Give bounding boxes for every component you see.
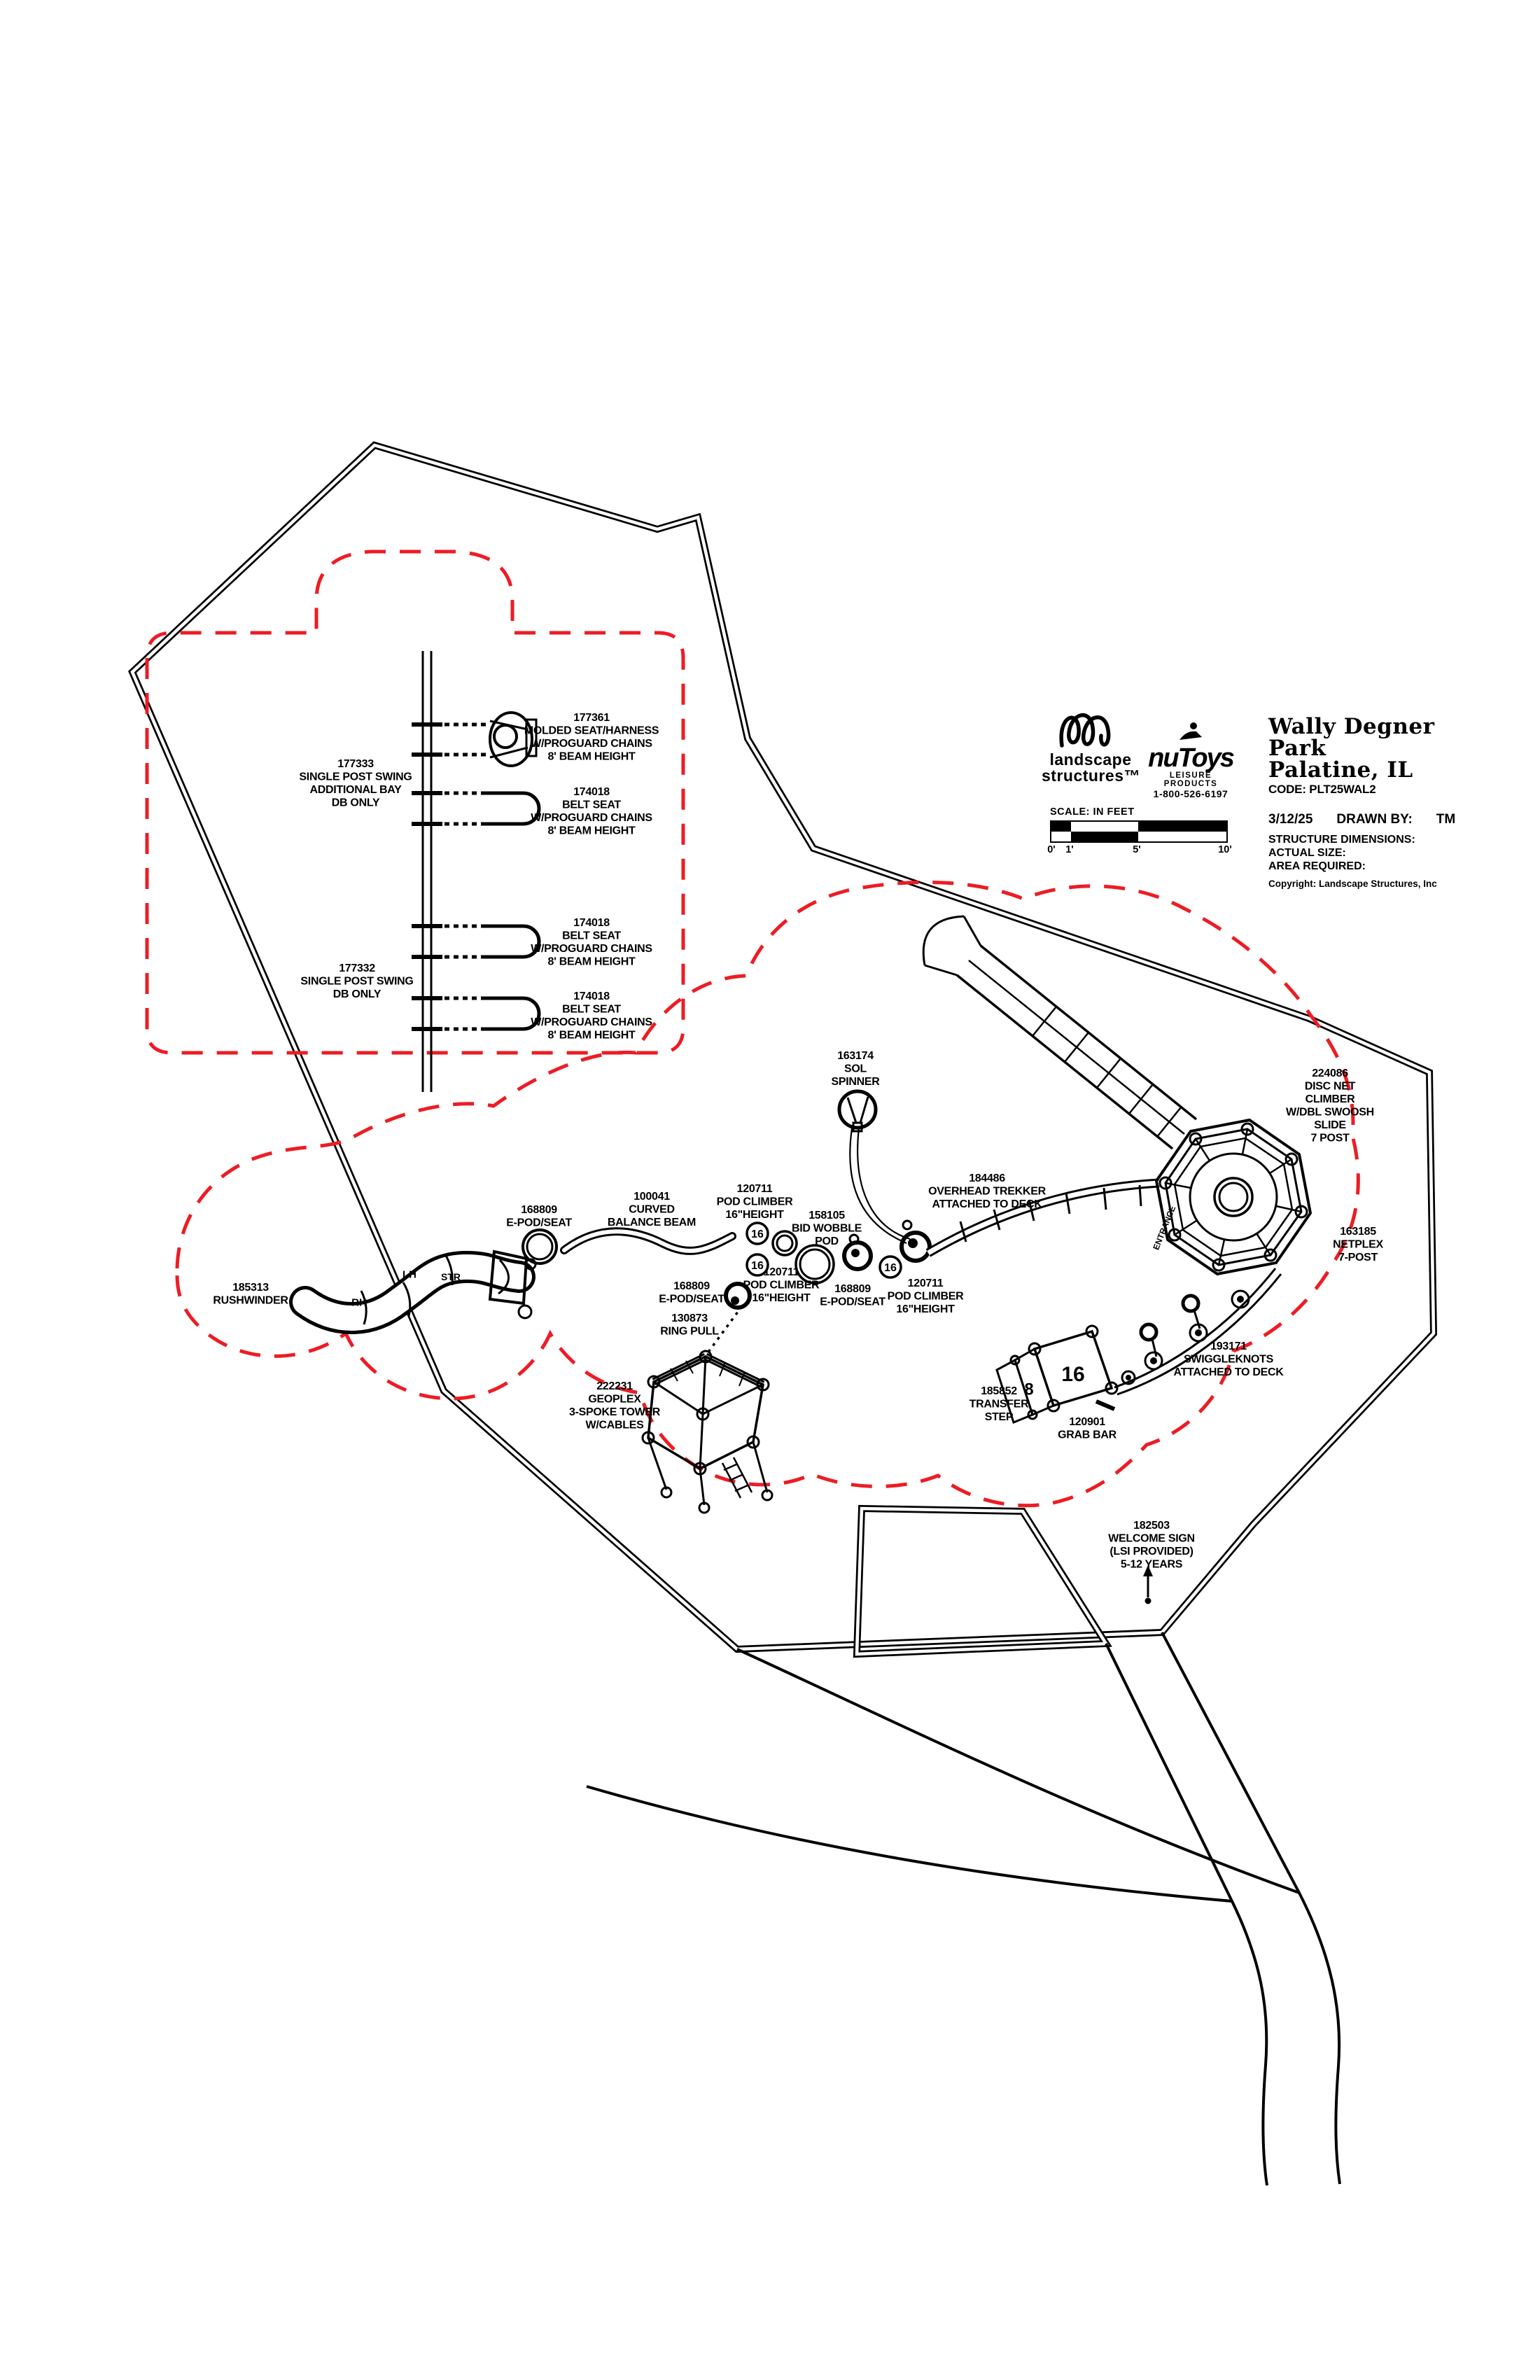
scale-bar: SCALE: IN FEET 0' 1' 5' 10' [1050,806,1239,855]
curved-balance-beam [564,1231,732,1251]
nutoys-logo: nuToys LEISURE PRODUCTS 1-800-526-6197 [1145,722,1236,799]
plan-mark-text: 8 [1024,1380,1033,1399]
geoplex-tower [643,1351,772,1513]
e-pod-seat-2 [844,1235,871,1269]
plan-mark-text: LH [402,1268,416,1280]
belt-seats [484,793,539,1029]
field-area-required: AREA REQUIRED: [1268,860,1492,873]
scale-bar-graphic [1050,820,1228,843]
grab-bar [1096,1401,1114,1409]
site-boundary [132,445,1434,1654]
title-block-text: Wally Degner Park Palatine, IL CODE: PLT… [1268,716,1492,889]
equipment-label: 100041CURVEDBALANCE BEAM [608,1191,696,1228]
field-structure-dimensions: STRUCTURE DIMENSIONS: [1268,833,1492,846]
plan-code: CODE: PLT25WAL2 [1268,783,1492,797]
equipment-label: 222231GEOPLEX3-SPOKE TOWERW/CABLES [569,1380,661,1431]
equipment-label: 174018BELT SEATW/PROGUARD CHAINS8' BEAM … [531,917,652,968]
equipment-label: 184486OVERHEAD TREKKERATTACHED TO DECK [928,1172,1046,1210]
equipment-label: 163185NETPLEX7-POST [1333,1226,1383,1263]
landscape-squiggle-icon [1052,702,1129,748]
equipment-label: 185313RUSHWINDER [213,1282,288,1307]
e-pod-seat-1 [523,1230,556,1263]
swing-beam-brackets [412,724,442,1029]
equipment-label: 168809E-POD/SEAT [820,1283,885,1308]
equipment-label: 120711POD CLIMBER16"HEIGHT [717,1183,793,1221]
nutoys-tagline: LEISURE PRODUCTS [1145,771,1236,788]
site-plan-sheet: 177333SINGLE POST SWINGADDITIONAL BAYDB … [0,0,1540,2380]
double-swoosh-slide [923,916,1196,1149]
plan-date: 3/12/25 [1268,812,1312,827]
scale-bar-ticks: 0' 1' 5' 10' [1050,843,1225,855]
equipment-label: 177333SINGLE POST SWINGADDITIONAL BAYDB … [299,758,412,809]
equipment-label: 174018BELT SEATW/PROGUARD CHAINS8' BEAM … [531,786,652,837]
equipment-label: 130873RING PULL [660,1312,719,1338]
swing-set [412,651,539,1092]
molded-seat-harness [490,713,536,766]
plan-drawing: 177333SINGLE POST SWINGADDITIONAL BAYDB … [0,0,1540,2380]
plan-mark-text: 16 [1061,1363,1084,1386]
drawn-by-label: DRAWN BY: [1336,812,1412,827]
equipment-label: 224086DISC NETCLIMBERW/DBL SWOOSHSLIDE7 … [1286,1067,1374,1144]
plan-mark-text: RH [351,1296,367,1308]
scale-tick-10: 10' [1218,844,1232,855]
plan-mark-text: 16 [751,1260,764,1272]
scale-tick-1: 1' [1065,844,1074,855]
nutoys-phone: 1-800-526-6197 [1145,788,1236,799]
equipment-label: 193171SWIGGLEKNOTSATTACHED TO DECK [1174,1340,1284,1378]
nutoys-wordmark: nuToys [1145,746,1236,770]
rushwinder-slide [305,1252,535,1324]
landscape-structures-logo: landscape structures™ [1042,702,1140,784]
equipment-label: 163174SOLSPINNER [831,1050,880,1088]
equipment-label: 174018BELT SEATW/PROGUARD CHAINS8' BEAM … [531,990,652,1042]
park-name: Wally Degner Park [1268,716,1492,759]
nutoys-figure-icon [1175,722,1206,743]
plan-mark-text: STR [441,1271,461,1282]
tower-octagon [1156,1120,1310,1274]
equipment-label: 177361MOLDED SEAT/HARNESSW/PROGUARD CHAI… [524,712,659,763]
equipment-label: 168809E-POD/SEAT [506,1204,572,1229]
plan-mark-text: 16 [751,1228,764,1240]
scale-bar-label: SCALE: IN FEET [1050,806,1239,818]
landscape-wordmark-line2: structures™ [1042,768,1140,784]
landscape-wordmark-line1: landscape [1042,752,1140,768]
plan-mark-text: 16 [884,1262,897,1274]
equipment-label: 182503WELCOME SIGN(LSI PROVIDED)5-12 YEA… [1108,1520,1195,1571]
swing-chains [435,724,486,1029]
equipment-label: 185852TRANSFERSTEP [969,1385,1029,1423]
park-location: Palatine, IL [1268,759,1492,781]
copyright-line: Copyright: Landscape Structures, Inc [1268,878,1492,889]
welcome-sign-marker [1143,1565,1153,1604]
equipment-label: 120901GRAB BAR [1058,1416,1117,1441]
scale-tick-5: 5' [1133,844,1141,855]
walkway-paths [587,1632,1340,2185]
field-actual-size: ACTUAL SIZE: [1268,846,1492,860]
equipment-label: 120711POD CLIMBER16"HEIGHT [888,1277,964,1315]
equipment-label: 168809E-POD/SEAT [659,1280,724,1305]
scale-tick-0: 0' [1047,844,1056,855]
equipment-label: 177332SINGLE POST SWINGDB ONLY [300,962,413,1000]
sol-spinner [839,1091,910,1243]
drawn-by-value: TM [1436,812,1455,827]
